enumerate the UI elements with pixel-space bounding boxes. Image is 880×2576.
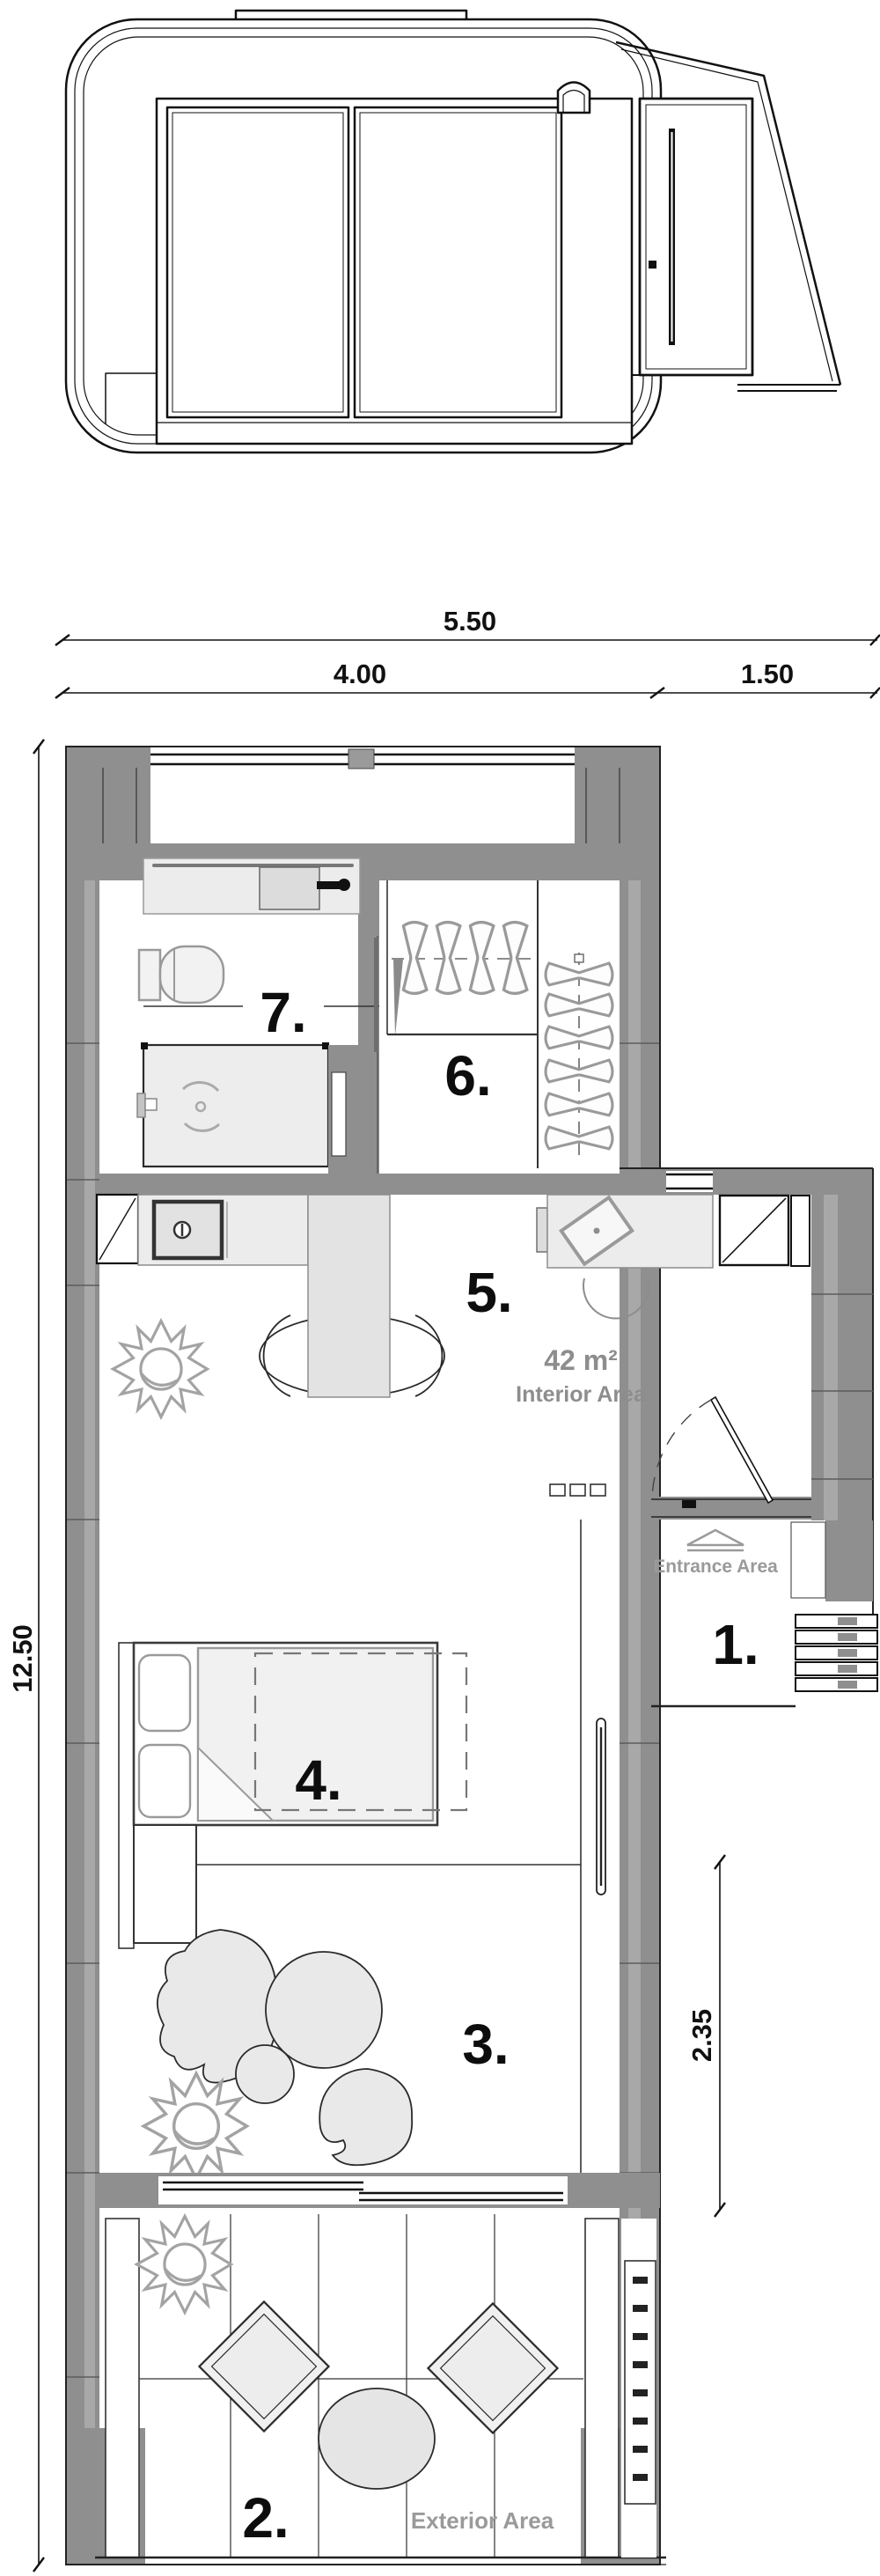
entrance-stairs bbox=[796, 1615, 877, 1691]
living-room bbox=[143, 1930, 412, 2179]
kitchen-dining bbox=[97, 1195, 788, 1417]
dim-value-living-depth: 2.35 bbox=[686, 2009, 717, 2062]
lounge-chair-right bbox=[428, 2303, 557, 2432]
room-label-3: 3. bbox=[462, 2013, 509, 2076]
elevation-drawing bbox=[66, 11, 840, 453]
dim-value-total-length: 12.50 bbox=[7, 1624, 38, 1693]
entrance-wall bbox=[651, 1497, 811, 1520]
plan-drawing: 5.50 4.00 1.50 12.50 2.35 bbox=[0, 0, 880, 2576]
plant-icon bbox=[136, 2216, 231, 2312]
shower-niche bbox=[332, 1072, 346, 1156]
entrance-door-leaf bbox=[711, 1397, 773, 1503]
sliding-door-panel-left bbox=[167, 107, 348, 417]
top-window bbox=[103, 749, 620, 843]
bath-kitchen-wall bbox=[99, 1174, 660, 1195]
sliding-door-panel-right bbox=[355, 107, 561, 417]
lounge-chair-left bbox=[199, 2301, 328, 2431]
interior-area-label: Interior Area bbox=[516, 1382, 647, 1407]
annex-top-wall bbox=[620, 1168, 873, 1195]
exterior-area-label: Exterior Area bbox=[411, 2507, 554, 2534]
plant-icon bbox=[113, 1321, 207, 1417]
dim-value-annex-width: 1.50 bbox=[741, 659, 794, 689]
room-label-6: 6. bbox=[444, 1044, 491, 1108]
room-label-4: 4. bbox=[295, 1748, 341, 1812]
terrace bbox=[95, 2214, 666, 2565]
wardrobe-room bbox=[387, 880, 612, 1168]
dimension-module-widths: 4.00 1.50 bbox=[55, 659, 880, 698]
toilet bbox=[139, 946, 224, 1003]
dim-value-total-width: 5.50 bbox=[444, 606, 496, 637]
plant-icon bbox=[143, 2073, 246, 2179]
faucet-icon bbox=[317, 881, 341, 889]
floor-plan-sheet: 5.50 4.00 1.50 12.50 2.35 bbox=[0, 0, 880, 2576]
shower bbox=[137, 1042, 358, 1177]
dimension-total-width: 5.50 bbox=[55, 606, 880, 645]
dim-value-main-width: 4.00 bbox=[334, 659, 386, 689]
door-swing-arc bbox=[652, 1400, 711, 1498]
headboard-panel bbox=[119, 1643, 134, 1948]
pillow bbox=[139, 1655, 190, 1731]
shoe-bench bbox=[550, 1484, 605, 1496]
shower-valve bbox=[137, 1093, 145, 1117]
sink-basin bbox=[260, 867, 319, 909]
outdoor-ladder bbox=[621, 2219, 656, 2558]
pillow bbox=[139, 1745, 190, 1817]
dimension-living-depth: 2.35 bbox=[686, 1855, 725, 2217]
entrance-area-label: Entrance Area bbox=[653, 1557, 778, 1577]
room-label-7: 7. bbox=[260, 981, 306, 1044]
dimension-total-length: 12.50 bbox=[7, 740, 44, 2572]
side-window bbox=[791, 1196, 810, 1266]
terrace-table bbox=[319, 2388, 435, 2489]
annex-right-wall bbox=[811, 1195, 873, 1520]
room-label-2: 2. bbox=[242, 2486, 289, 2550]
kitchen-island bbox=[308, 1195, 390, 1397]
terrace-wall bbox=[99, 2173, 660, 2208]
room-label-1: 1. bbox=[712, 1613, 759, 1676]
side-cabinet bbox=[134, 1825, 196, 1943]
desk-monitor bbox=[537, 1208, 547, 1252]
entrance-arrow-icon bbox=[687, 1530, 744, 1550]
interior-area-value: 42 m² bbox=[544, 1344, 618, 1376]
room-label-5: 5. bbox=[466, 1261, 512, 1324]
vanity-counter bbox=[143, 858, 360, 914]
annex-door bbox=[640, 99, 752, 375]
